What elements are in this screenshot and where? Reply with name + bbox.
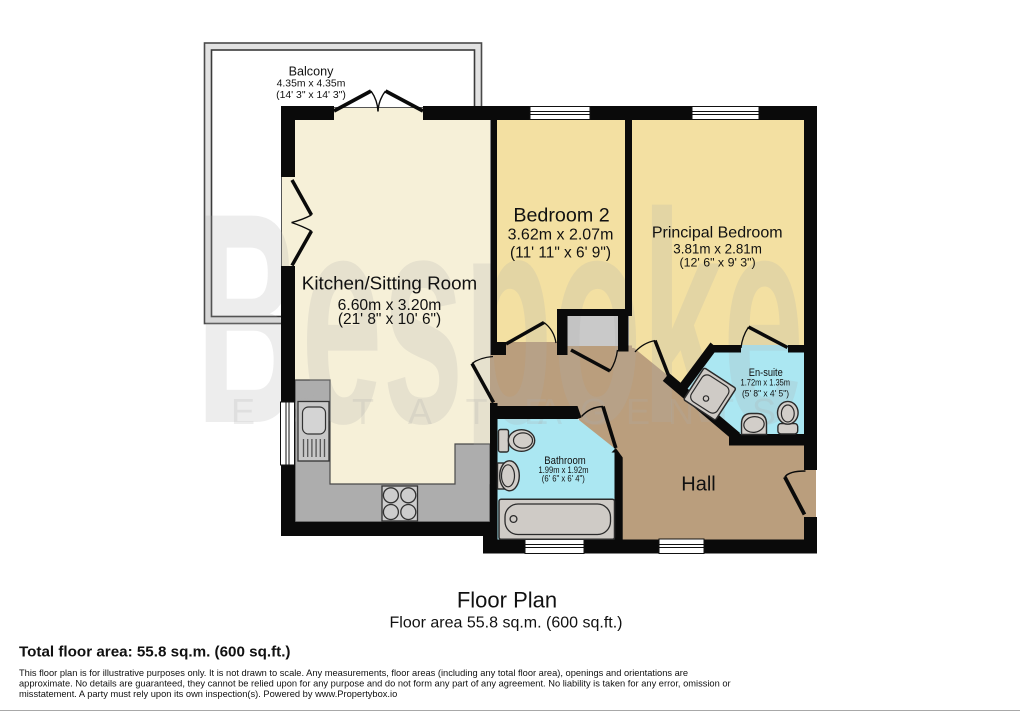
svg-text:Floor area 55.8 sq.m. (600 sq.: Floor area 55.8 sq.m. (600 sq.ft.): [390, 615, 623, 632]
svg-text:misstatement. A party must rel: misstatement. A party must rely upon its…: [19, 689, 397, 699]
svg-text:Bedroom 2: Bedroom 2: [513, 205, 609, 227]
svg-text:This floor plan is for illustr: This floor plan is for illustrative purp…: [19, 668, 688, 678]
svg-text:4.35m x 4.35m: 4.35m x 4.35m: [277, 78, 346, 89]
svg-text:(6' 6" x 6' 4"): (6' 6" x 6' 4"): [542, 474, 585, 484]
svg-text:(11' 11" x 6' 9"): (11' 11" x 6' 9"): [510, 244, 611, 261]
svg-text:Balcony: Balcony: [289, 65, 335, 79]
svg-text:(21' 8" x 10' 6"): (21' 8" x 10' 6"): [338, 311, 441, 328]
svg-text:approximate. No details are gu: approximate. No details are guaranteed, …: [19, 679, 731, 689]
svg-text:1.72m x 1.35m: 1.72m x 1.35m: [741, 378, 791, 388]
svg-text:3.62m x 2.07m: 3.62m x 2.07m: [508, 226, 614, 243]
svg-text:Total floor area: 55.8 sq.m. (: Total floor area: 55.8 sq.m. (600 sq.ft.…: [19, 644, 290, 661]
svg-text:Principal Bedroom: Principal Bedroom: [652, 224, 783, 241]
svg-text:(12' 6" x 9' 3"): (12' 6" x 9' 3"): [679, 256, 755, 270]
svg-text:Hall: Hall: [681, 474, 715, 496]
svg-text:3.81m x 2.81m: 3.81m x 2.81m: [673, 242, 762, 257]
svg-text:Kitchen/Sitting Room: Kitchen/Sitting Room: [302, 273, 477, 294]
svg-text:(14' 3" x 14' 3"): (14' 3" x 14' 3"): [276, 90, 346, 101]
svg-text:(5' 8" x 4' 5"): (5' 8" x 4' 5"): [742, 389, 789, 399]
svg-text:Floor Plan: Floor Plan: [457, 588, 557, 613]
